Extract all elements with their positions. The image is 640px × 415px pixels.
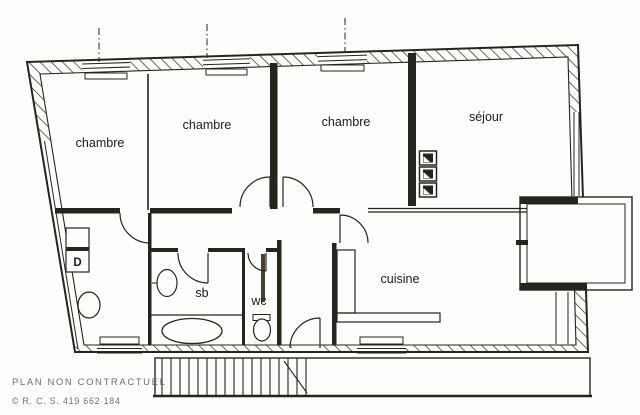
hall-seat (78, 292, 100, 318)
bathtub (162, 319, 222, 344)
exterior-walls (27, 18, 636, 359)
room-label-sdb: sb (195, 286, 208, 300)
room-label-chambre-1: chambre (76, 136, 125, 150)
room-label-placard: D (73, 257, 81, 269)
room-label-chambre-3: chambre (322, 115, 371, 129)
room-label-cuisine: cuisine (381, 272, 420, 286)
kitchen-counter (337, 250, 440, 322)
balcony (516, 197, 632, 290)
floor-plan-canvas: chambre chambre chambre séjour cuisine s… (0, 0, 640, 415)
room-label-wc: wc (250, 294, 266, 308)
room-label-chambre-2: chambre (183, 118, 232, 132)
staircase (153, 358, 592, 396)
sink (157, 270, 177, 297)
toilet (254, 319, 271, 341)
interior-walls (55, 53, 527, 345)
wall-unit-symbols (420, 151, 437, 197)
fixtures (66, 151, 440, 344)
room-label-sejour: séjour (469, 110, 503, 124)
rcs-registration: © R. C. S. 419 662 184 (12, 396, 121, 406)
floor-plan-page: chambre chambre chambre séjour cuisine s… (0, 0, 640, 415)
window-glazing (45, 55, 580, 353)
plan-disclaimer: PLAN NON CONTRACTUEL (12, 377, 166, 388)
